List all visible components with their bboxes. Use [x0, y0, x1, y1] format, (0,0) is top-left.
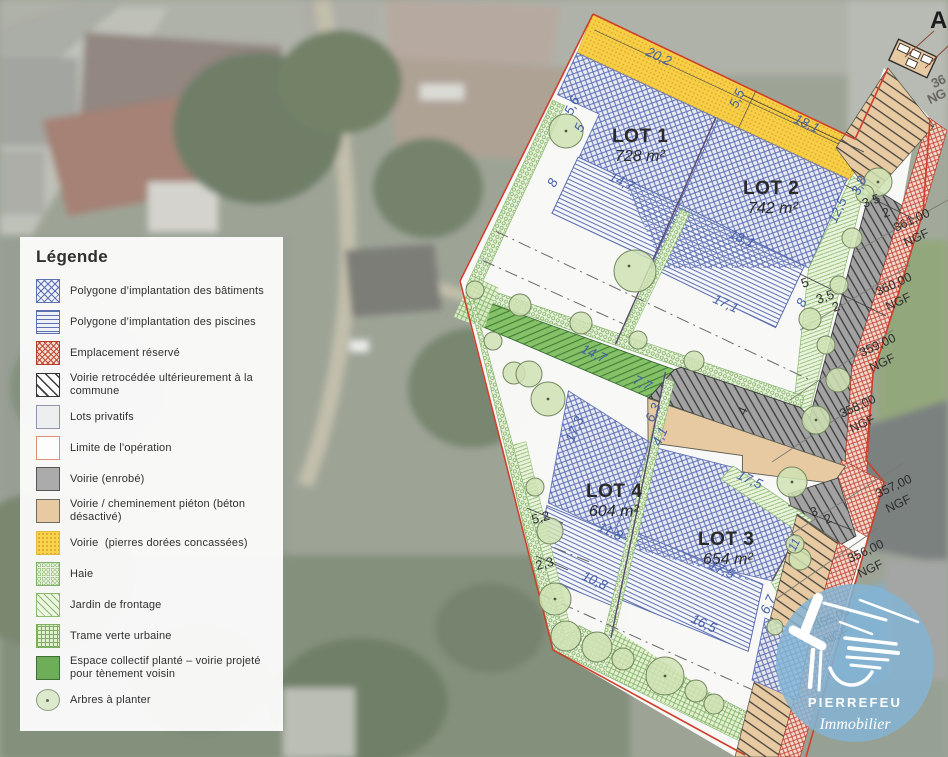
svg-text:LOT 4: LOT 4 [586, 481, 642, 502]
svg-text:Immobilier: Immobilier [818, 716, 891, 733]
svg-text:LOT 2: LOT 2 [743, 178, 799, 199]
svg-text:742 m²: 742 m² [748, 200, 798, 217]
svg-text:728 m²: 728 m² [615, 148, 665, 165]
svg-text:PIERREFEU: PIERREFEU [808, 695, 902, 710]
svg-text:604 m²: 604 m² [589, 503, 639, 520]
svg-text:NG: NG [925, 86, 948, 107]
svg-text:LOT 1: LOT 1 [612, 126, 668, 147]
svg-text:LOT 3: LOT 3 [698, 529, 754, 550]
svg-text:A: A [930, 7, 947, 34]
